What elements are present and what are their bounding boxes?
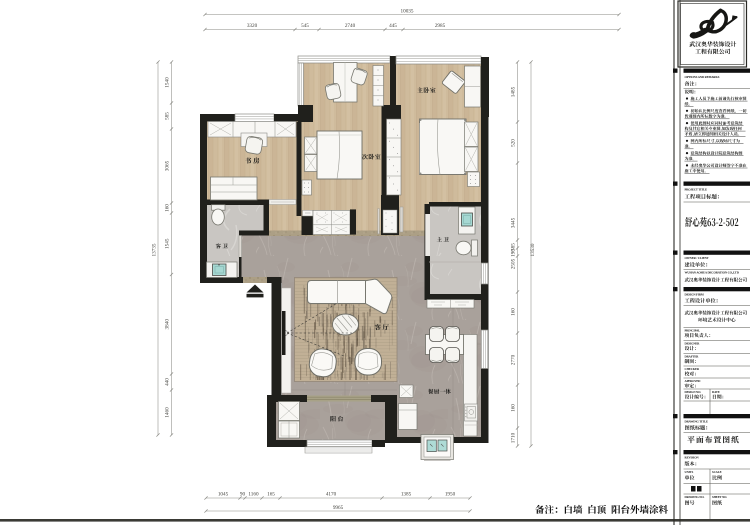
svg-text:545: 545 <box>301 23 309 29</box>
svg-text:APPROVED: APPROVED <box>685 379 702 383</box>
svg-text:DRAWING TITLE: DRAWING TITLE <box>685 420 709 424</box>
svg-text:10035: 10035 <box>401 9 414 15</box>
svg-text:SHEET NO.: SHEET NO. <box>712 495 727 499</box>
svg-text:SCALE: SCALE <box>712 470 722 474</box>
svg-text:13735: 13735 <box>152 243 158 256</box>
svg-text:PROJECT TITLE: PROJECT TITLE <box>685 188 708 192</box>
svg-text:CHECKER: CHECKER <box>685 367 700 371</box>
svg-text:3840: 3840 <box>165 319 171 330</box>
svg-text:WUHAN AOHUA DECORATION CO.,LTD: WUHAN AOHUA DECORATION CO.,LTD <box>685 271 740 275</box>
svg-text:190: 190 <box>511 249 517 257</box>
svg-text:DESIGNER: DESIGNER <box>685 341 701 345</box>
svg-text:520: 520 <box>511 139 517 147</box>
svg-text:3065: 3065 <box>165 160 171 171</box>
svg-text:160: 160 <box>511 404 517 412</box>
svg-text:1045: 1045 <box>218 492 229 498</box>
svg-text:DRAFTER: DRAFTER <box>685 354 700 358</box>
svg-text:1160: 1160 <box>248 492 259 498</box>
svg-text:1485: 1485 <box>511 86 517 97</box>
svg-text:2740: 2740 <box>345 23 356 29</box>
svg-text:160: 160 <box>511 308 517 316</box>
svg-text:2505: 2505 <box>511 258 517 269</box>
svg-text:DRAWING NO.: DRAWING NO. <box>685 495 705 499</box>
svg-text:OWNER / CLIENT: OWNER / CLIENT <box>685 256 709 260</box>
svg-text:4170: 4170 <box>326 492 337 498</box>
svg-text:DATE: DATE <box>712 390 720 394</box>
svg-text:445: 445 <box>389 23 397 29</box>
svg-text:OPTIONS AND REMARKS: OPTIONS AND REMARKS <box>685 75 720 79</box>
svg-text:PRINCIPAL: PRINCIPAL <box>685 328 701 332</box>
svg-text:1385: 1385 <box>401 492 412 498</box>
svg-text:DESIGN NO.: DESIGN NO. <box>685 390 702 394</box>
svg-text:2985: 2985 <box>435 23 446 29</box>
svg-text:440: 440 <box>165 378 171 386</box>
svg-text:165: 165 <box>267 492 275 498</box>
svg-text:9965: 9965 <box>333 505 344 511</box>
svg-text:585: 585 <box>165 112 171 120</box>
svg-text:3445: 3445 <box>511 217 517 228</box>
svg-text:90: 90 <box>240 492 246 498</box>
svg-text:160: 160 <box>165 204 171 212</box>
svg-text:3320: 3320 <box>247 23 258 29</box>
svg-text:13530: 13530 <box>530 243 536 256</box>
svg-text:1950: 1950 <box>445 492 456 498</box>
svg-text:1545: 1545 <box>165 238 171 249</box>
svg-text:2770: 2770 <box>511 354 517 365</box>
svg-text:REVISION: REVISION <box>685 456 700 460</box>
svg-text:UNITS: UNITS <box>685 470 694 474</box>
svg-text:1460: 1460 <box>165 407 171 418</box>
svg-text:1710: 1710 <box>511 432 517 443</box>
svg-text:1540: 1540 <box>165 77 171 88</box>
svg-text:DESIGN FIRM: DESIGN FIRM <box>685 293 704 297</box>
